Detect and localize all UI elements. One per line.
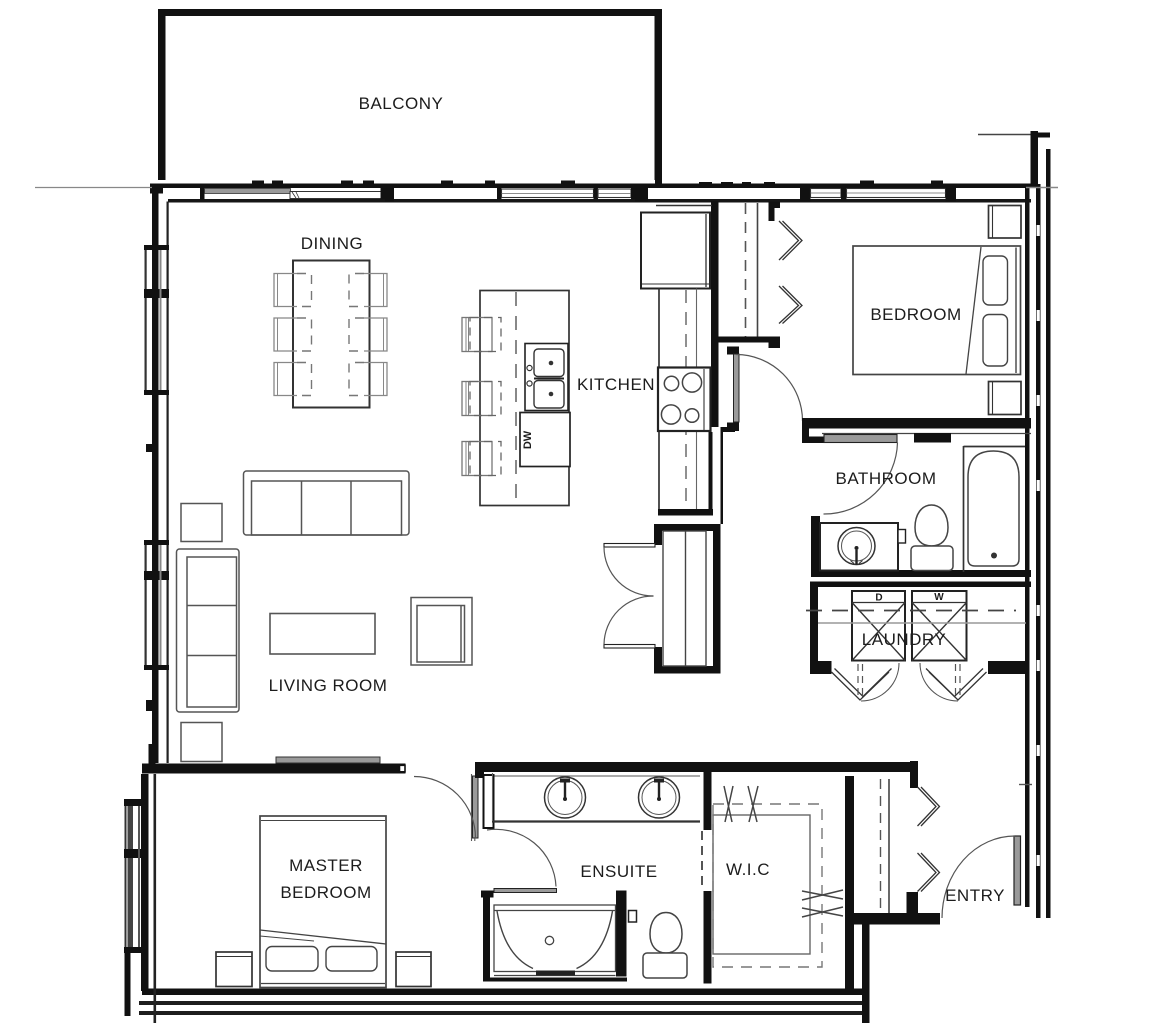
svg-text:MASTER: MASTER — [289, 856, 363, 875]
svg-text:DINING: DINING — [301, 234, 364, 253]
svg-text:BATHROOM: BATHROOM — [836, 469, 937, 488]
svg-text:BALCONY: BALCONY — [359, 94, 444, 113]
svg-text:D: D — [875, 593, 882, 604]
svg-text:BEDROOM: BEDROOM — [870, 305, 961, 324]
svg-text:ENTRY: ENTRY — [945, 886, 1005, 905]
svg-text:BEDROOM: BEDROOM — [280, 883, 371, 902]
svg-text:W: W — [934, 592, 944, 603]
svg-text:W.I.C: W.I.C — [726, 860, 770, 879]
svg-text:DW: DW — [522, 430, 534, 449]
svg-text:ENSUITE: ENSUITE — [580, 862, 657, 881]
svg-text:KITCHEN: KITCHEN — [577, 375, 655, 394]
svg-text:LAUNDRY: LAUNDRY — [862, 630, 946, 649]
svg-text:LIVING ROOM: LIVING ROOM — [269, 676, 388, 695]
